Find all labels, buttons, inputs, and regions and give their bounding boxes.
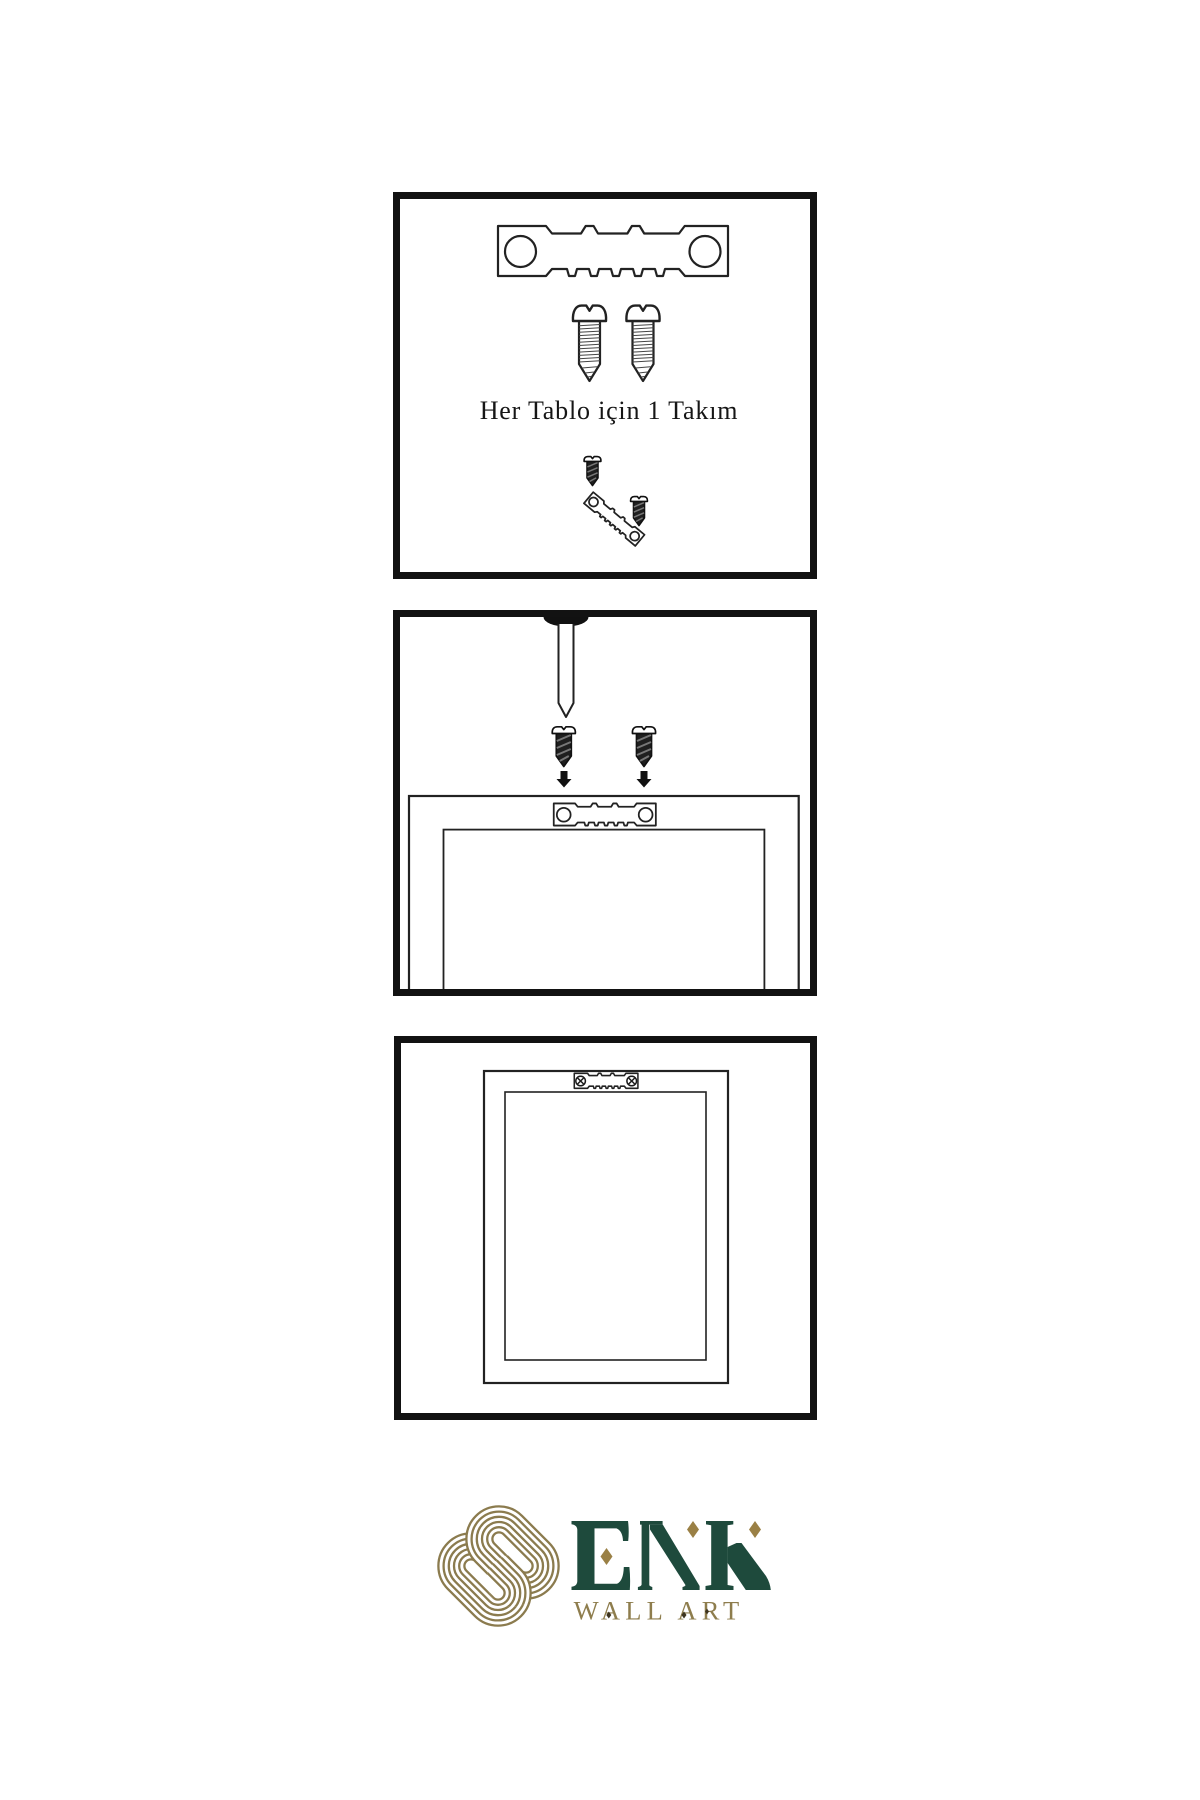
svg-text:WALL ART: WALL ART [574, 1596, 745, 1626]
svg-text:Her Tablo için 1 Takım: Her Tablo için 1 Takım [480, 396, 739, 425]
